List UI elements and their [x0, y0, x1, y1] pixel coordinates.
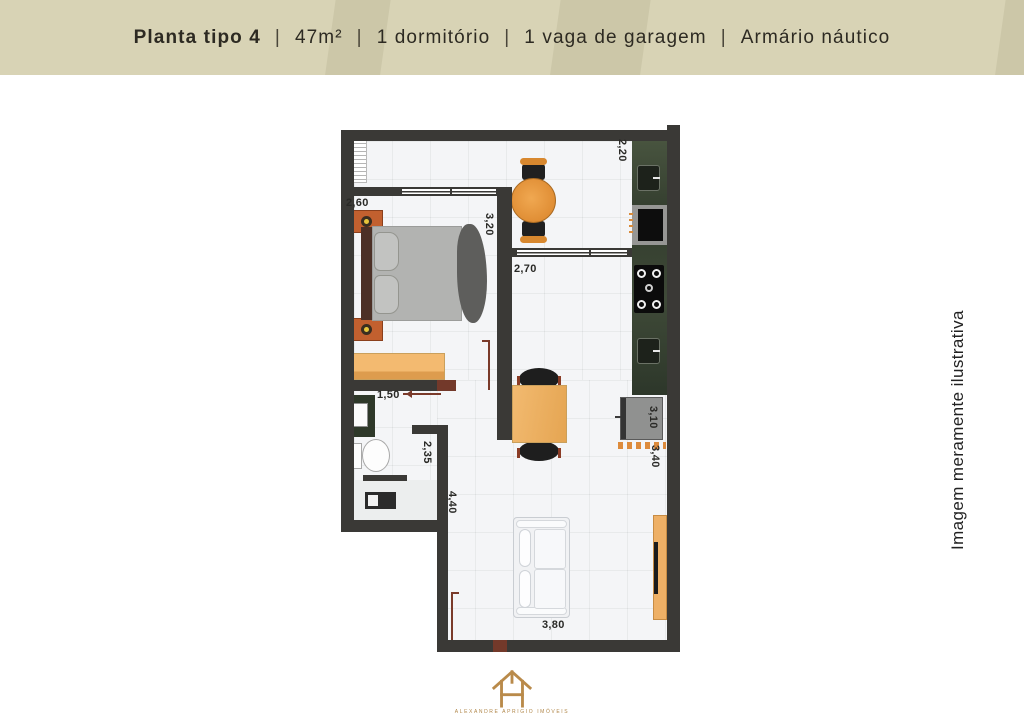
pillow-icon	[374, 232, 399, 271]
separator: |	[355, 27, 365, 49]
pillow-icon	[374, 275, 399, 314]
spec-cabinet: Armário náutico	[741, 27, 891, 49]
dim-bedroom-width: 2,60	[346, 197, 369, 209]
oven-knob	[629, 219, 633, 221]
floor-plan-page: Planta tipo 4 | 47m² | 1 dormitório | 1 …	[0, 0, 1024, 723]
wall-bottom	[437, 640, 680, 652]
cooktop-icon	[634, 265, 664, 313]
dim-living-width: 3,80	[542, 619, 565, 631]
plan-title-line: Planta tipo 4 | 47m² | 1 dormitório | 1 …	[0, 0, 1024, 75]
kitchen-sink-icon	[637, 165, 660, 191]
oven-icon	[638, 209, 663, 241]
shower-bench-icon	[365, 492, 396, 509]
wall-living-left	[437, 427, 448, 652]
burner	[637, 269, 646, 278]
nightstand-icon	[350, 318, 383, 341]
entrance-door-icon	[451, 592, 453, 640]
wall-accent-red	[437, 380, 456, 391]
wall-shower-partition	[363, 475, 407, 481]
burner	[652, 300, 661, 309]
tv-icon	[654, 542, 658, 594]
plan-title: Planta tipo 4	[134, 27, 261, 49]
oven-knob	[629, 213, 633, 215]
sofa-icon	[513, 517, 570, 618]
separator: |	[502, 27, 512, 49]
desk-icon	[352, 353, 445, 380]
round-dining-table-icon	[511, 178, 556, 223]
kitchen-sink-icon	[637, 338, 660, 364]
separator: |	[719, 27, 729, 49]
wall-cabinet-icon	[352, 138, 367, 183]
oven-knob	[629, 225, 633, 227]
dim-bedroom-length: 3,20	[483, 213, 495, 236]
wall-bedroom-divider	[497, 187, 512, 440]
header-band: Planta tipo 4 | 47m² | 1 dormitório | 1 …	[0, 0, 1024, 75]
floor-plan: 2,60 3,20 2,20 2,70 1,50 2,35 4,40 3,10 …	[341, 125, 680, 652]
dim-balcony-depth: 2,20	[616, 139, 628, 162]
burner	[637, 300, 646, 309]
bed-headboard	[361, 227, 372, 320]
wall-bathroom-bottom	[341, 520, 447, 532]
spec-area: 47m²	[295, 27, 343, 49]
wall-top	[341, 130, 680, 141]
spec-garage: 1 vaga de garagem	[524, 27, 706, 49]
brand-name: ALEXANDRE APRIGIO IMÓVEIS	[0, 709, 1024, 715]
chair-icon	[519, 441, 559, 461]
dim-kitchen-width: 2,70	[514, 263, 537, 275]
kitchen-window-icon	[516, 249, 628, 256]
bedroom-door-icon	[488, 340, 490, 390]
wall-right	[667, 125, 680, 652]
disclaimer-note: Imagem meramente ilustrativa	[948, 258, 968, 550]
dim-bathroom-width: 1,50	[377, 389, 400, 401]
bedroom-window-icon	[401, 188, 497, 195]
table-icon	[512, 385, 567, 443]
wall-bathroom-stub	[412, 425, 448, 434]
wall-left	[341, 130, 354, 532]
dim-service-length: 3,40	[649, 445, 661, 468]
entry-threshold	[493, 640, 507, 652]
oven-knob	[629, 231, 633, 233]
house-logo-icon	[488, 668, 536, 708]
dim-bathroom-length: 2,35	[421, 441, 433, 464]
burner	[652, 269, 661, 278]
brand-logo: ALEXANDRE APRIGIO IMÓVEIS	[0, 668, 1024, 715]
chair-icon	[522, 221, 545, 237]
burner-center	[645, 284, 653, 292]
dim-service-width: 3,10	[647, 406, 659, 429]
dim-living-length: 4,40	[446, 491, 458, 514]
bathroom-door-swing-icon	[403, 393, 441, 395]
spec-bedrooms: 1 dormitório	[377, 27, 491, 49]
separator: |	[273, 27, 283, 49]
toilet-bowl	[362, 439, 390, 472]
